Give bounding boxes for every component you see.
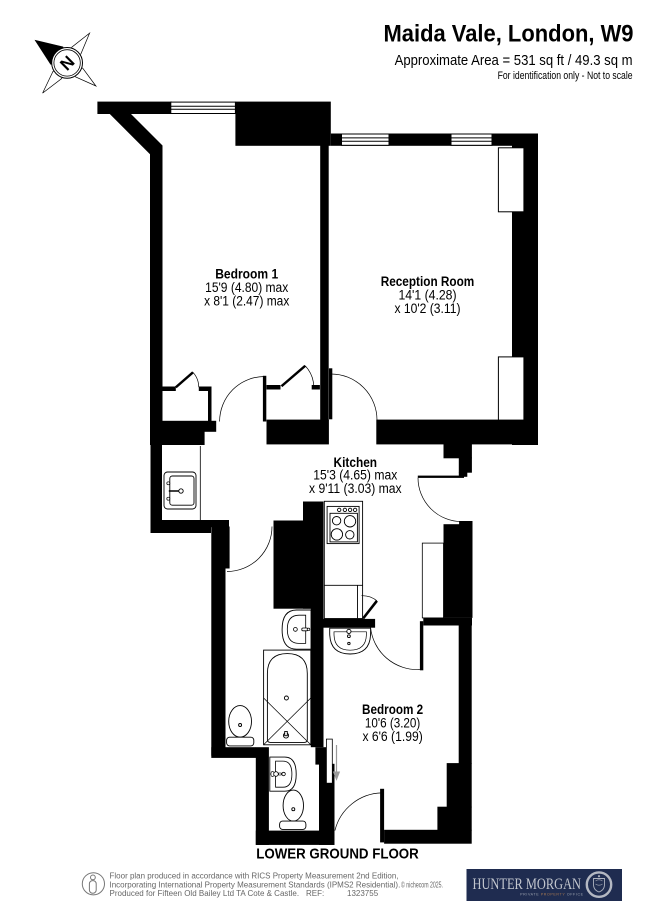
svg-text:1323755: 1323755 bbox=[347, 889, 379, 898]
svg-text:© nichecom 2025.: © nichecom 2025. bbox=[401, 880, 443, 889]
svg-text:Incorporating International Pr: Incorporating International Property Mea… bbox=[110, 880, 401, 889]
svg-text:Produced for Fifteen Old Baile: Produced for Fifteen Old Bailey Ltd TA C… bbox=[110, 889, 300, 898]
svg-text:Approximate Area = 531 sq ft /: Approximate Area = 531 sq ft / 49.3 sq m bbox=[395, 53, 633, 69]
svg-text:x 8'1 (2.47) max: x 8'1 (2.47) max bbox=[204, 293, 289, 308]
svg-text:Maida Vale, London, W9: Maida Vale, London, W9 bbox=[384, 21, 634, 48]
svg-text:LOWER GROUND FLOOR: LOWER GROUND FLOOR bbox=[256, 847, 419, 863]
svg-text:REF:: REF: bbox=[306, 889, 324, 898]
svg-text:x 9'11 (3.03) max: x 9'11 (3.03) max bbox=[309, 481, 402, 496]
svg-text:Floor plan produced in accorda: Floor plan produced in accordance with R… bbox=[110, 872, 399, 881]
svg-text:PRIVATE PROPERTY OFFICE: PRIVATE PROPERTY OFFICE bbox=[520, 893, 583, 897]
svg-text:For identification only - Not: For identification only - Not to scale bbox=[498, 70, 633, 82]
svg-text:x 10'2 (3.11): x 10'2 (3.11) bbox=[394, 301, 460, 316]
svg-text:HUNTER MORGAN: HUNTER MORGAN bbox=[473, 876, 582, 893]
svg-text:x 6'6 (1.99): x 6'6 (1.99) bbox=[362, 729, 422, 744]
